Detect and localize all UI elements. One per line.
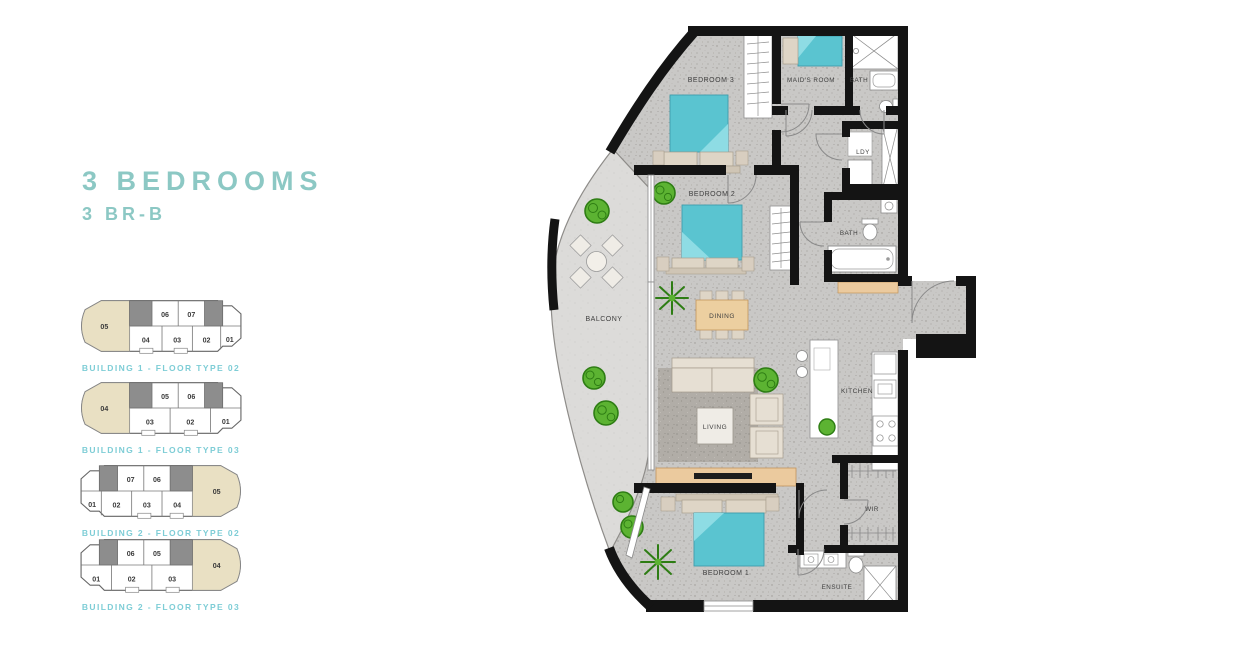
unit-number: 01 — [222, 418, 230, 426]
vanity-icon — [800, 551, 846, 568]
key-plan-building2-type02: 05 07 06 01 02 03 04 BUILDING 2 - FLOOR … — [74, 462, 248, 538]
core-block — [205, 301, 223, 326]
key-plan-label: BUILDING 2 - FLOOR TYPE 03 — [74, 602, 248, 612]
room-label-bedroom-1: BEDROOM 1 — [703, 570, 750, 577]
room-label-living: LIVING — [703, 424, 727, 431]
key-plan-svg-1: 05 06 07 04 03 02 01 — [75, 297, 247, 355]
key-plan-building1-type02: 05 06 07 04 03 02 01 BUILDING 1 - FLOOR … — [74, 297, 248, 373]
shrub-icon — [594, 401, 618, 425]
unit-number: 04 — [173, 502, 181, 510]
basin-icon — [881, 199, 897, 213]
unit-number: 05 — [153, 550, 161, 558]
core-block — [130, 383, 152, 408]
key-plan-building1-type03: 04 05 06 03 02 01 BUILDING 1 - FLOOR TYP… — [74, 379, 248, 455]
shrub-icon — [653, 182, 675, 204]
palm-plant-icon — [641, 545, 675, 579]
shrub-icon — [819, 419, 835, 435]
room-label-bedroom-2: BEDROOM 2 — [689, 191, 736, 198]
unit-number: 06 — [127, 550, 135, 558]
unit-number: 05 — [100, 323, 108, 331]
shrub-icon — [613, 492, 633, 512]
core-block — [130, 301, 152, 326]
unit-number: 01 — [88, 501, 96, 509]
palm-plant-icon — [656, 282, 688, 314]
bedroom2-wardrobe-icon — [770, 206, 792, 270]
bathtub-icon — [828, 246, 896, 272]
key-plan-building2-type03: 04 06 05 01 02 03 BUILDING 2 - FLOOR TYP… — [74, 536, 248, 612]
unit-number: 06 — [187, 393, 195, 401]
key-plan-svg-3: 05 07 06 01 02 03 04 — [75, 462, 247, 520]
unit-number: 03 — [143, 502, 151, 510]
core-block — [170, 540, 192, 565]
unit-number: 05 — [213, 488, 221, 496]
unit-number: 02 — [128, 576, 136, 584]
key-plan-label: BUILDING 1 - FLOOR TYPE 02 — [74, 363, 248, 373]
unit-number: 02 — [113, 502, 121, 510]
unit-number: 03 — [168, 576, 176, 584]
room-label-wir: WIR — [865, 506, 879, 513]
unit-number: 01 — [226, 336, 234, 344]
unit-number: 04 — [100, 405, 108, 413]
bar-stool-icon — [797, 367, 808, 378]
floor-plan-svg: BEDROOM 3 MAID'S ROOM BATH LDY BEDROOM 2… — [540, 0, 1020, 661]
tv-icon — [694, 473, 752, 479]
room-label-ensuite: ENSUITE — [822, 584, 853, 591]
shrub-icon — [585, 199, 609, 223]
unit-number: 05 — [161, 393, 169, 401]
core-block — [205, 383, 223, 408]
room-label-ldy: LDY — [856, 149, 870, 156]
room-label-kitchen: KITCHEN — [841, 388, 873, 395]
unit-number: 04 — [213, 562, 221, 570]
room-label-bath-mid: BATH — [840, 230, 858, 237]
unit-number: 06 — [153, 476, 161, 484]
page-title: 3 BEDROOMS — [82, 166, 324, 197]
unit-number: 02 — [186, 419, 194, 427]
room-label-maids-room: MAID'S ROOM — [787, 77, 835, 84]
core-block — [170, 466, 192, 491]
key-plan-label: BUILDING 1 - FLOOR TYPE 03 — [74, 445, 248, 455]
shrub-icon — [583, 367, 605, 389]
key-plan-svg-2: 04 05 06 03 02 01 — [75, 379, 247, 437]
maids-room-bed-icon — [783, 36, 842, 66]
core-block — [99, 466, 117, 491]
unit-number: 01 — [92, 576, 100, 584]
washer-icon — [848, 160, 872, 186]
page-subtitle: 3 BR-B — [82, 204, 324, 225]
bedroom3-wardrobe-icon — [744, 34, 772, 118]
unit-number: 03 — [173, 337, 181, 345]
unit-number: 02 — [203, 337, 211, 345]
unit-number: 07 — [187, 311, 195, 319]
toilet-icon — [862, 219, 878, 224]
shrub-icon — [754, 368, 778, 392]
unit-number: 03 — [146, 419, 154, 427]
key-plan-svg-4: 04 06 05 01 02 03 — [75, 536, 247, 594]
room-label-balcony: BALCONY — [586, 316, 623, 323]
title-block: 3 BEDROOMS 3 BR-B — [82, 166, 324, 225]
room-label-bath-top: BATH — [850, 77, 868, 84]
bar-stool-icon — [797, 351, 808, 362]
brochure-page: 3 BEDROOMS 3 BR-B 05 06 07 04 03 02 01 B… — [0, 0, 1257, 661]
kitchen-counter — [872, 352, 898, 470]
unit-number: 04 — [142, 337, 150, 345]
room-label-bedroom-3: BEDROOM 3 — [688, 77, 735, 84]
unit-number: 06 — [161, 311, 169, 319]
hall-cabinet-icon — [838, 282, 898, 293]
room-label-dining: DINING — [709, 313, 735, 320]
unit-number: 07 — [127, 476, 135, 484]
core-block — [99, 540, 117, 565]
